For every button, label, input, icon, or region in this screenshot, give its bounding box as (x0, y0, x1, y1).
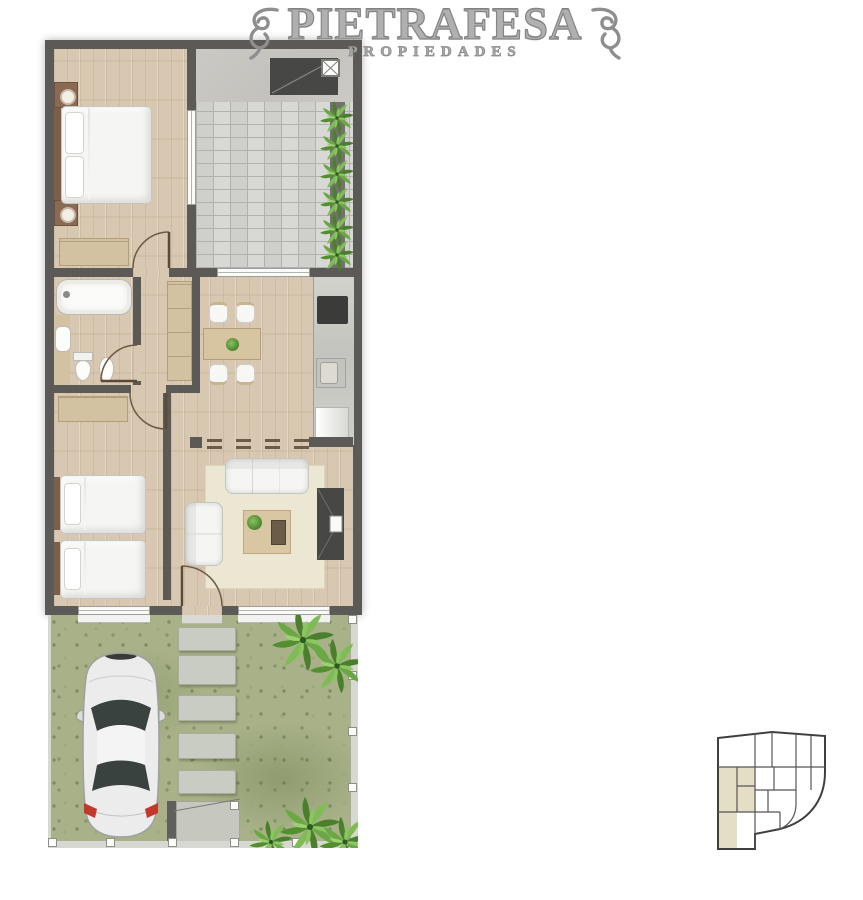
sofa-3-seat (225, 458, 309, 494)
single-bed (54, 540, 144, 597)
site-key-plan (708, 722, 833, 854)
refrigerator (315, 407, 349, 439)
fence-post (48, 838, 57, 847)
single-bed (54, 475, 144, 532)
fence-left (48, 615, 51, 848)
lamp-icon (60, 89, 76, 105)
flourish-ornament-left (243, 6, 285, 60)
palm-tree-icon (318, 815, 358, 848)
car (75, 650, 167, 840)
flourish-ornament-right (585, 6, 627, 60)
door-arc-bedroom-1 (133, 232, 170, 269)
window (187, 110, 196, 205)
wardrobe-bedroom-2 (58, 396, 128, 422)
wall (54, 385, 131, 393)
brand-name: PIETRAFESA (287, 2, 582, 47)
window-sill (78, 615, 150, 623)
wall (192, 277, 200, 385)
coffee-table-plant-icon (247, 515, 262, 530)
tv-cabinet (317, 488, 344, 560)
dining-chair (236, 364, 255, 385)
entry-door-opening (182, 606, 222, 615)
dining-chair (209, 364, 228, 385)
fence-post (106, 838, 115, 847)
dining-chair (209, 302, 228, 323)
bathtub (56, 279, 132, 315)
entry-threshold (182, 615, 222, 624)
door-opening (133, 268, 169, 277)
fence-post (348, 783, 357, 792)
open-plan-dashed-line (207, 446, 309, 449)
double-bed (54, 106, 150, 202)
kitchen-sink (316, 358, 346, 388)
sofa-2-seat (185, 502, 223, 566)
door-arc-bathroom (101, 345, 138, 382)
wall-stub (309, 437, 353, 447)
dining-chair (236, 302, 255, 323)
cooktop (317, 296, 348, 324)
chimney-vent (321, 59, 340, 77)
fence-post (168, 838, 177, 847)
house-plan (45, 40, 362, 615)
window-bedroom-2 (78, 606, 150, 615)
brand-logo: PIETRAFESA PROPIEDADES (240, 2, 630, 60)
toilet (73, 352, 93, 382)
lamp-icon (60, 207, 76, 223)
washbasin (55, 326, 71, 352)
window-living (238, 606, 330, 615)
open-plan-dashed-line (207, 439, 309, 442)
shrub-icon (319, 237, 355, 273)
highlighted-unit (719, 812, 737, 848)
door-arc-bedroom-2 (130, 393, 167, 430)
wall-stub (190, 437, 202, 448)
stepping-stone (178, 695, 236, 721)
stepping-stone (178, 627, 236, 651)
hallway-closet (167, 281, 192, 381)
logo-text: PIETRAFESA PROPIEDADES (287, 2, 582, 60)
table-plant-icon (226, 338, 239, 351)
wall (166, 385, 200, 393)
wardrobe-bedroom-1 (59, 238, 129, 266)
stepping-stone (178, 655, 236, 685)
fence-post (348, 727, 357, 736)
fence-post (348, 615, 357, 624)
fence-post (230, 838, 239, 847)
decor-tray (271, 520, 286, 545)
sliding-door-terrace (217, 268, 310, 277)
stepping-stone (178, 733, 236, 759)
door-arc-entry (182, 566, 223, 607)
floor-plan-sheet: PIETRAFESA PROPIEDADES (0, 0, 863, 900)
palm-tree-icon (308, 637, 358, 695)
nightstand (54, 82, 78, 108)
garden (48, 615, 358, 848)
fence-post (230, 801, 239, 810)
stepping-stone (178, 770, 236, 794)
